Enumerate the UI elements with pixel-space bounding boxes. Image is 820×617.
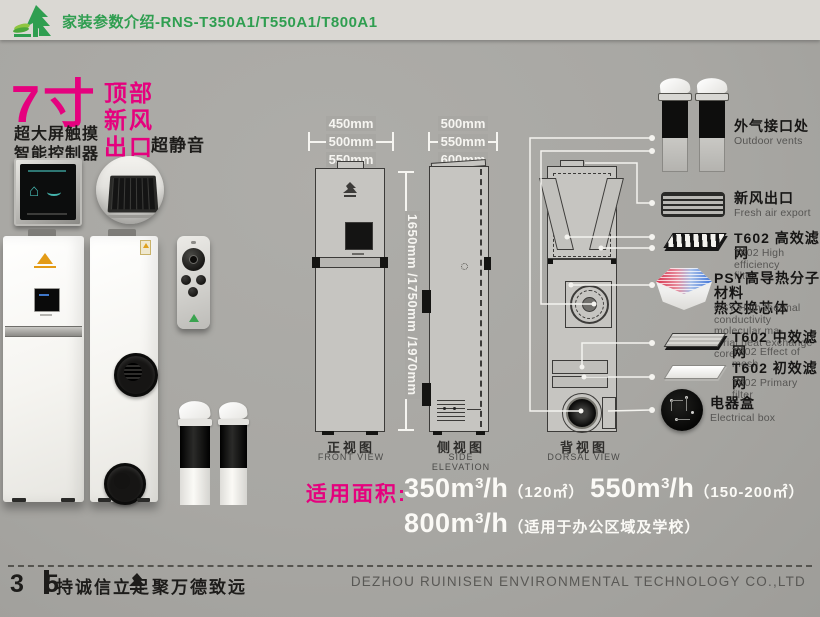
hepa-filter-icon: [663, 233, 726, 248]
page-number-bar: [44, 570, 49, 594]
footer-logo-icon: [126, 572, 148, 591]
component-label-en: Outdoor vents: [734, 136, 803, 148]
coverage-item-550: 550m3/h（150-200㎡）: [590, 473, 804, 504]
footer-slogan2: 聚万德致远: [152, 573, 247, 598]
catalog-page: 家装参数介绍-RNS-T350A1/T550A1/T800A1 7寸 超大屏触摸…: [0, 0, 820, 617]
component-label-cn: 新风出口: [734, 191, 794, 206]
company-name: DEZHOU RUINISEN ENVIRONMENTAL TECHNOLOGY…: [351, 574, 806, 589]
component-label-en: Electrical box: [710, 413, 775, 425]
coverage-item-800: 800m3/h（适用于办公区域及学校）: [404, 508, 700, 539]
electrical-box-icon: [661, 389, 703, 431]
fresh-air-outlet-icon: [661, 192, 725, 217]
component-label-cn: 外气接口处: [734, 119, 809, 134]
outdoor-vents-icon: [658, 77, 730, 172]
mid-filter-icon: [664, 333, 727, 347]
footer-divider: [8, 565, 812, 567]
coverage-item-350: 350m3/h（120㎡）: [404, 473, 584, 504]
coverage-label: 适用面积:: [306, 478, 407, 508]
primary-filter-icon: [664, 365, 727, 379]
component-label-en: Fresh air export: [734, 208, 811, 220]
component-label-cn: 电器盒: [710, 396, 755, 411]
